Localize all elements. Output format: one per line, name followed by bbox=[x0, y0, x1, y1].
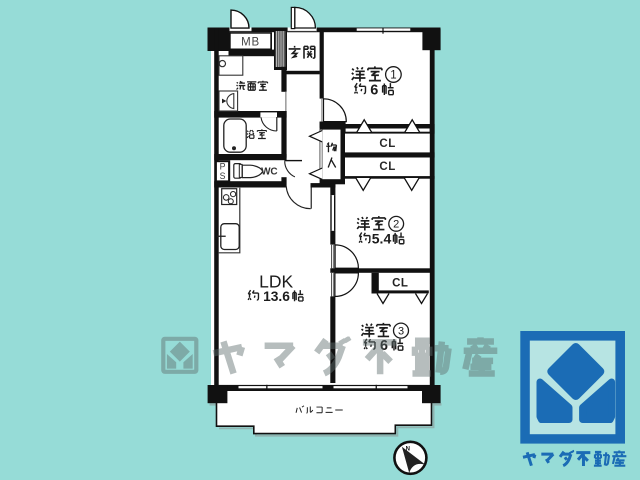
svg-text:6: 6 bbox=[370, 83, 378, 99]
svg-text:1: 1 bbox=[390, 70, 396, 82]
svg-text:3: 3 bbox=[398, 326, 404, 338]
svg-text:N: N bbox=[406, 446, 410, 452]
svg-text:13.6: 13.6 bbox=[263, 289, 290, 304]
svg-text:CL: CL bbox=[379, 161, 395, 173]
svg-text:WC: WC bbox=[261, 167, 277, 178]
svg-text:5.4: 5.4 bbox=[372, 231, 392, 247]
svg-text:CL: CL bbox=[392, 278, 408, 290]
svg-text:2: 2 bbox=[393, 219, 399, 231]
svg-text:S: S bbox=[220, 171, 226, 181]
svg-text:CL: CL bbox=[379, 138, 395, 150]
svg-text:MB: MB bbox=[241, 36, 260, 48]
